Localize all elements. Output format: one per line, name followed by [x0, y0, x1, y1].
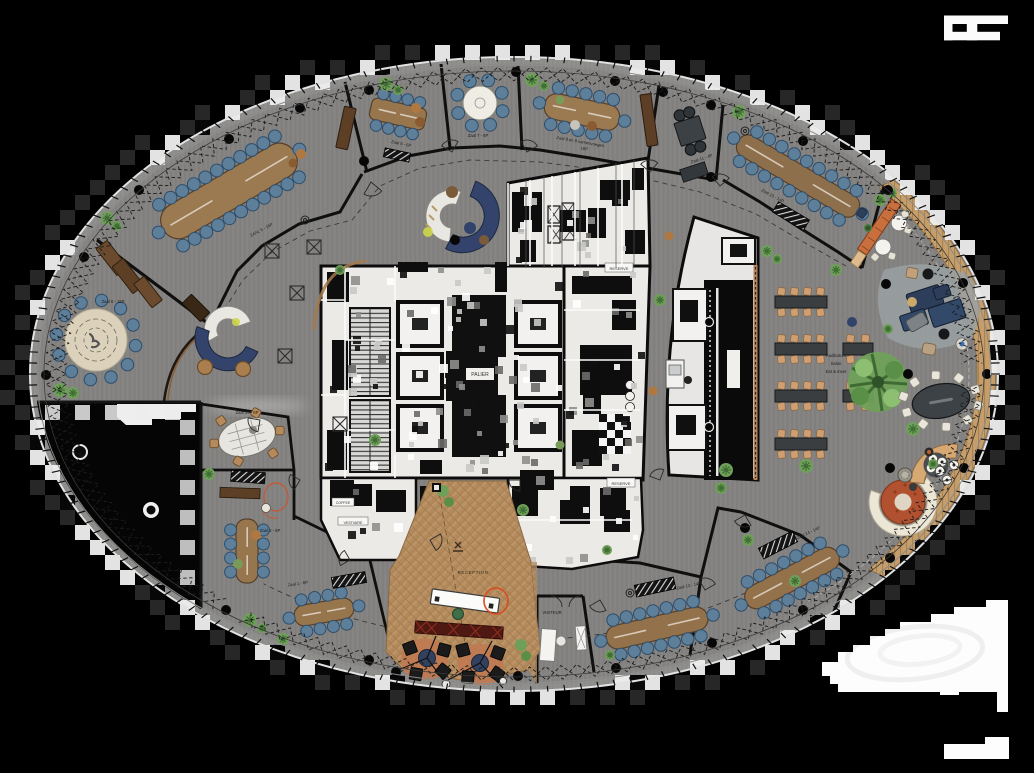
svg-text:RECEPTION: RECEPTION: [458, 570, 489, 575]
svg-text:Auditorium: Auditorium: [826, 353, 847, 358]
svg-text:Zaal 6 - 16P: Zaal 6 - 16P: [102, 299, 125, 304]
svg-text:VISITEUR: VISITEUR: [542, 610, 561, 615]
svg-text:Eat & meet: Eat & meet: [826, 369, 848, 374]
svg-text:COFFEE: COFFEE: [336, 501, 351, 505]
svg-text:Salon: Salon: [831, 361, 842, 366]
svg-text:RESERVE: RESERVE: [611, 481, 630, 486]
svg-text:PALIER: PALIER: [471, 372, 489, 378]
svg-text:RESERVE: RESERVE: [609, 266, 628, 271]
svg-text:Zaal 7 - 6P: Zaal 7 - 6P: [468, 133, 489, 138]
svg-text:Zaal 2 - 8P: Zaal 2 - 8P: [260, 528, 281, 533]
svg-text:Zaal 23 - 6P: Zaal 23 - 6P: [236, 410, 259, 415]
svg-text:VESTIAIRE: VESTIAIRE: [344, 521, 363, 525]
